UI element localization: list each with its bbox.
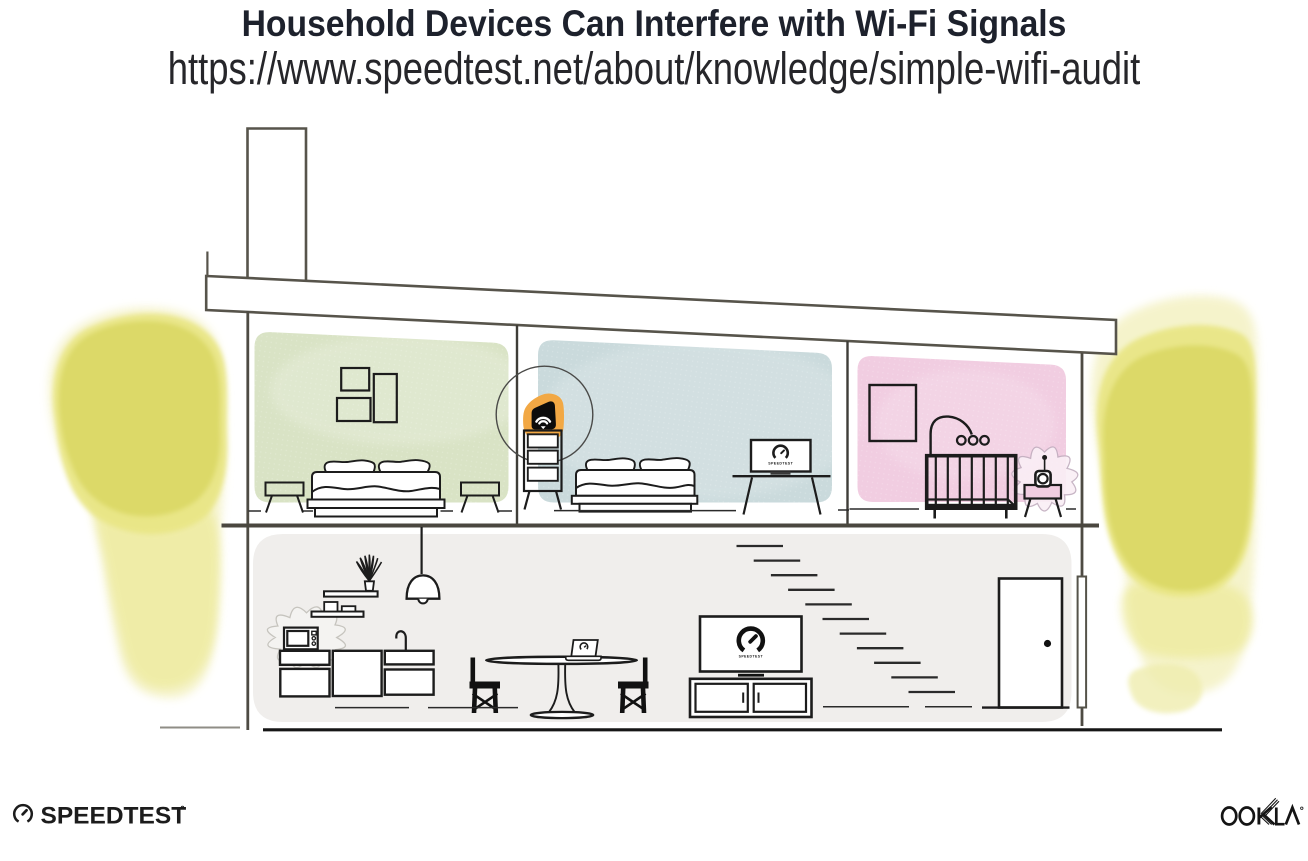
svg-text:SPEEDTEST: SPEEDTEST (41, 803, 187, 830)
svg-text:SPEEDTEST: SPEEDTEST (768, 462, 793, 466)
svg-text:SPEEDTEST: SPEEDTEST (739, 655, 764, 659)
